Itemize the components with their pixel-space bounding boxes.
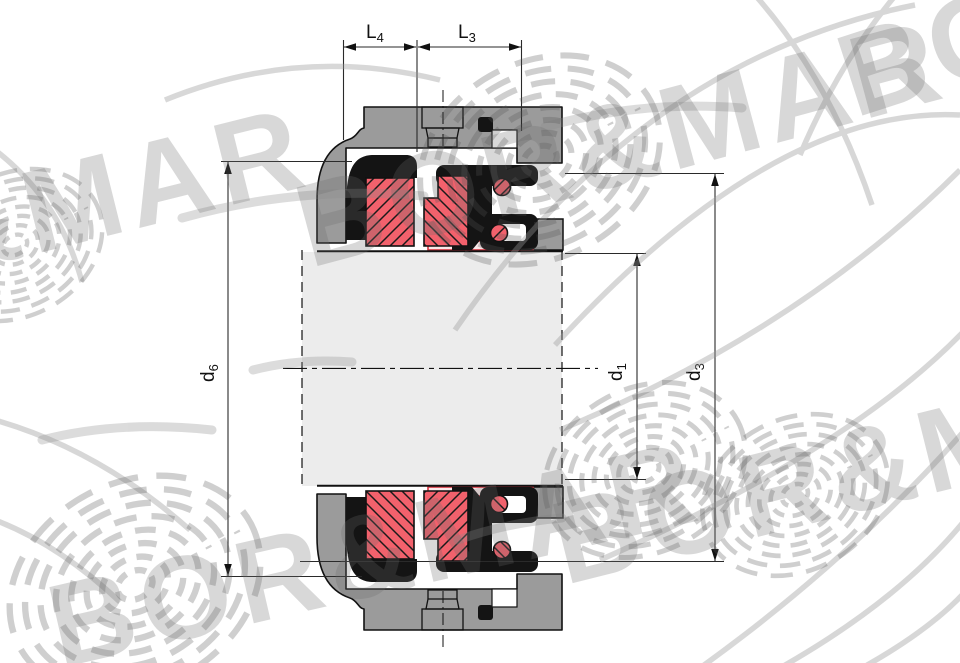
watermark-text: BOR&MAR <box>539 321 960 610</box>
seal-drawing-canvas: L4 L3 d6 d1 d3 <box>0 0 960 663</box>
dim-label-d1: d1 <box>606 363 629 381</box>
dim-label-d6: d6 <box>198 364 221 382</box>
technical-drawing-page: L4 L3 d6 d1 d3 <box>0 0 960 663</box>
dim-label-L3: L3 <box>458 22 476 45</box>
shaft <box>302 252 562 486</box>
watermark-text: BOR&MAR <box>0 81 322 370</box>
dim-label-L4: L4 <box>366 22 384 45</box>
